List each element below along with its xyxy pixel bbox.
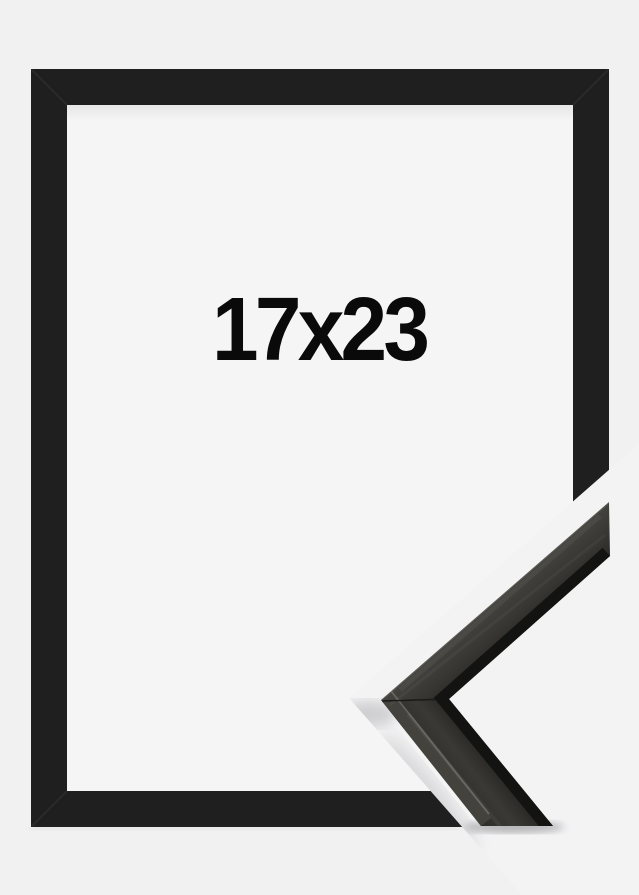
size-label: 17x23 (0, 285, 639, 375)
size-label-text: 17x23 (212, 285, 426, 375)
frame-graphic (0, 0, 639, 895)
frame-drop-shadow (31, 827, 460, 830)
frame-product-image: 17x23 (0, 0, 639, 895)
opening-inner-shadow (67, 105, 573, 121)
